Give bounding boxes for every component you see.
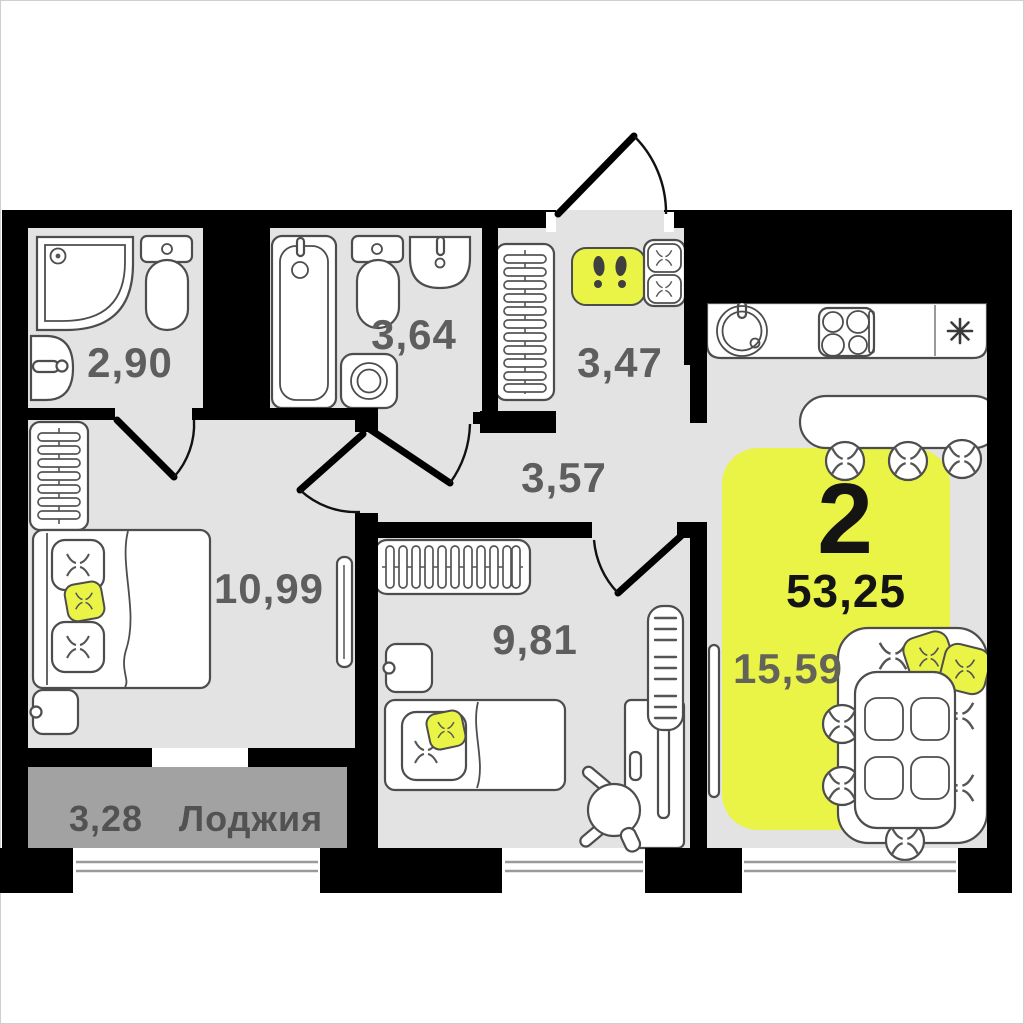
living-radiator (709, 645, 719, 797)
kitchen-counter (707, 302, 987, 358)
washing-machine (341, 354, 397, 408)
entry-bench (644, 240, 685, 306)
washbasin-2 (410, 237, 470, 288)
loggia-area-label: 3,28 (69, 798, 143, 839)
loggia-window-gap (152, 748, 248, 767)
stove (819, 308, 874, 356)
child-room-area-label: 9,81 (492, 616, 578, 663)
entry-door (546, 136, 674, 232)
floorplan-canvas: 2,90 3,64 3,47 3,57 10,99 9,81 2 53,25 1… (0, 0, 1024, 1024)
double-bed (33, 530, 210, 688)
bedroom-radiator (337, 557, 352, 667)
bathroom-large-area-label: 3,64 (371, 311, 457, 358)
washbasin-1 (31, 336, 73, 400)
child-wardrobe (375, 540, 530, 594)
fridge-asterisk-icon (948, 319, 972, 343)
bedroom-nightstand (31, 690, 79, 734)
loggia-name-label: Лоджия (179, 798, 323, 839)
hallway-area-label: 3,57 (521, 454, 607, 501)
bedroom-wardrobe (30, 422, 88, 530)
bathtub (272, 236, 336, 408)
total-area-label: 53,25 (786, 565, 906, 617)
bar-stool (943, 440, 981, 478)
single-bed (385, 700, 565, 790)
bar-stool (889, 442, 927, 480)
child-radiator (648, 606, 683, 730)
entry-wardrobe (496, 244, 554, 400)
bedroom-area-label: 10,99 (214, 565, 324, 612)
floorplan-svg: 2,90 3,64 3,47 3,57 10,99 9,81 2 53,25 1… (0, 0, 1024, 1024)
bar-counter (800, 396, 1000, 448)
toilet-1 (141, 236, 192, 330)
dining-table (855, 672, 955, 828)
living-room-area-label: 15,59 (733, 645, 843, 692)
bathroom-small-area-label: 2,90 (87, 339, 173, 386)
entry-area-label: 3,47 (577, 339, 663, 386)
entry-mat (572, 248, 645, 305)
child-nightstand (384, 644, 433, 692)
rooms-count-label: 2 (817, 463, 873, 575)
